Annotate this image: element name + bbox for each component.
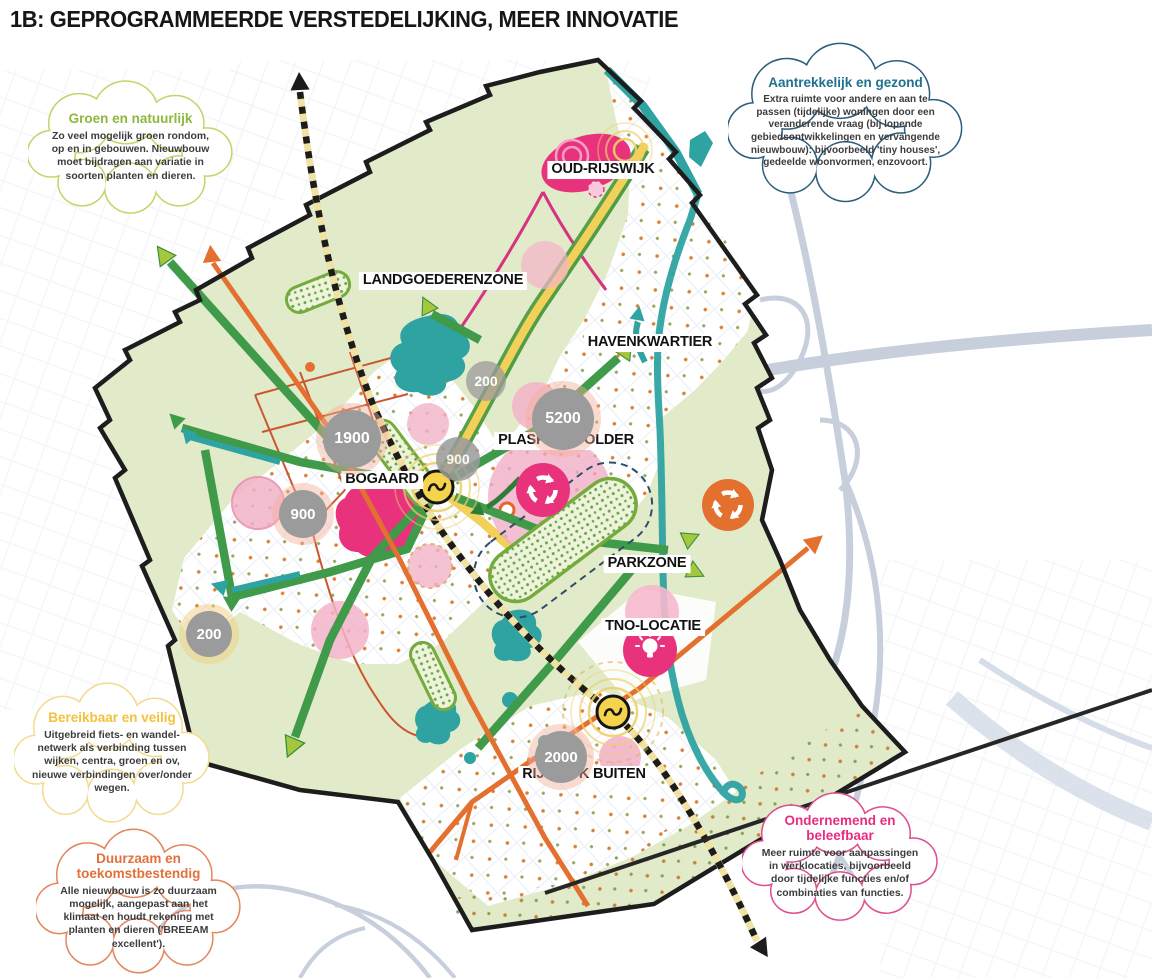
callout-body: Meer ruimte voor aanpassingen in werkloc… <box>758 847 923 900</box>
harbor-icon <box>689 131 713 167</box>
map-label-landgoederenzone: LANDGOEDERENZONE <box>359 272 527 290</box>
circular-economy-icon <box>516 463 570 517</box>
count-badge-west: 900 <box>279 490 327 538</box>
callout-title: Ondernemend en beleefbaar <box>758 814 923 844</box>
callout-body: Alle nieuwbouw is zo duurzaam mogelijk, … <box>52 885 224 951</box>
map-label-parkzone: PARKZONE <box>604 555 691 573</box>
callout-title: Aantrekkelijk en gezond <box>747 76 944 91</box>
count-badge-plaspoelpolder: 5200 <box>532 388 594 450</box>
callout-title: Groen en natuurlijk <box>44 112 216 127</box>
count-badge-bogaard-noord: 1900 <box>323 410 381 468</box>
count-badge-landgoederen: 200 <box>466 361 506 401</box>
callout-groen-en-natuurlijk: Groen en natuurlijk Zo veel mogelijk gro… <box>28 80 233 215</box>
callout-body: Zo veel mogelijk groen rondom, op en in … <box>44 130 216 183</box>
callout-body: Uitgebreid fiets- en wandel-netwerk als … <box>30 729 195 795</box>
urban-plan-map-page: 1B: GEPROGRAMMEERDE VERSTEDELIJKING, MEE… <box>0 0 1152 978</box>
callout-duurzaam-en-toekomstbestendig: Duurzaam en toekomstbestendig Alle nieuw… <box>36 828 241 975</box>
circular-economy-icon <box>702 479 754 531</box>
map-label-tno-locatie: TNO-LOCATIE <box>601 618 705 636</box>
callout-title: Bereikbaar en veilig <box>30 711 195 726</box>
train-station-icon <box>597 696 629 728</box>
callout-ondernemend-en-beleefbaar: Ondernemend en beleefbaar Meer ruimte vo… <box>742 792 938 922</box>
callout-aantrekkelijk-en-gezond: Aantrekkelijk en gezond Extra ruimte voo… <box>728 42 963 204</box>
count-badge-centrum: 900 <box>436 437 480 481</box>
callout-bereikbaar-en-veilig: Bereikbaar en veilig Uitgebreid fiets- e… <box>14 682 210 824</box>
map-label-havenkwartier: HAVENKWARTIER <box>584 334 716 352</box>
callout-body: Extra ruimte voor andere en aan te passe… <box>747 94 944 170</box>
map-label-oud-rijswijk: OUD-RIJSWIJK <box>547 161 658 179</box>
count-badge-rijswijk-buiten: 2000 <box>535 731 587 783</box>
callout-title: Duurzaam en toekomstbestendig <box>52 852 224 882</box>
count-badge-zuidwest: 200 <box>186 611 232 657</box>
map-label-bogaard: BOGAARD <box>341 471 423 489</box>
